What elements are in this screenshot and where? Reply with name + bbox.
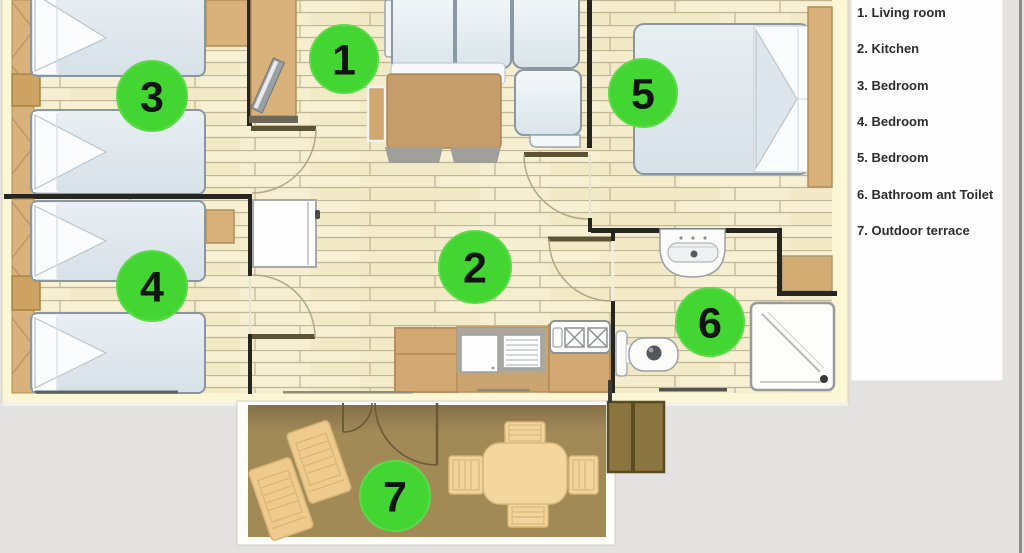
svg-text:2: 2 xyxy=(463,245,487,293)
svg-text:1. Living room: 1. Living room xyxy=(857,5,946,20)
svg-text:5. Bedroom: 5. Bedroom xyxy=(857,150,929,165)
svg-text:2. Kitchen: 2. Kitchen xyxy=(857,41,919,56)
svg-text:4. Bedroom: 4. Bedroom xyxy=(857,114,929,129)
svg-text:3: 3 xyxy=(140,74,164,122)
svg-text:3. Bedroom: 3. Bedroom xyxy=(857,78,929,93)
svg-text:6: 6 xyxy=(698,300,722,348)
svg-text:6. Bathroom ant Toilet: 6. Bathroom ant Toilet xyxy=(857,187,994,202)
svg-text:1: 1 xyxy=(332,37,356,85)
svg-text:5: 5 xyxy=(631,71,655,119)
svg-text:7: 7 xyxy=(383,474,407,522)
svg-text:7. Outdoor terrace: 7. Outdoor terrace xyxy=(857,223,970,238)
svg-text:4: 4 xyxy=(140,264,164,312)
